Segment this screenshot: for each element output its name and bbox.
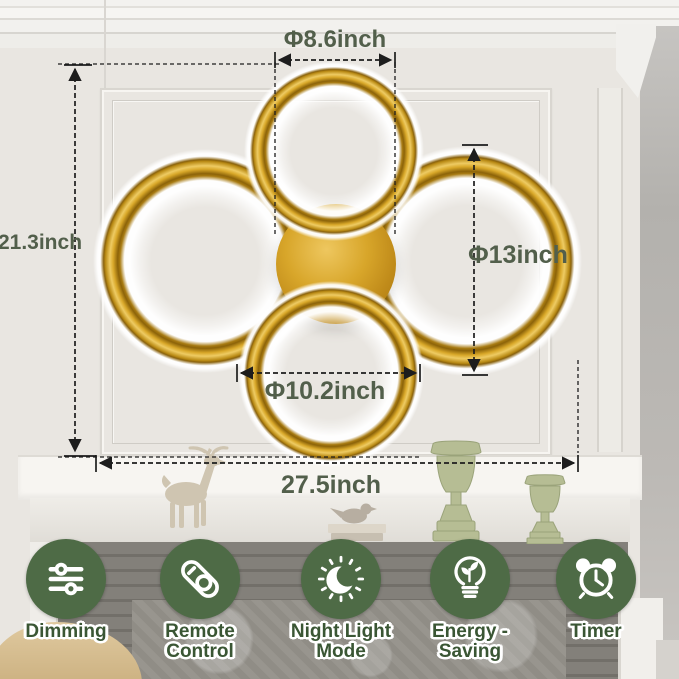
floor-corner (656, 640, 679, 679)
moon-icon (315, 553, 367, 605)
remote-control-icon (174, 553, 226, 605)
dimension-height-label: 21.3inch (0, 231, 82, 255)
feature-badge (26, 539, 106, 619)
dimension-bottom-ring-label: Φ10.2inch (265, 377, 386, 406)
feature-remote-control: Remote Control (134, 539, 266, 662)
feature-label: Dimming (25, 622, 106, 642)
feature-label: Energy - Saving (414, 622, 526, 662)
gold-led-ring-top (244, 61, 424, 241)
feature-label: Night Light Mode (277, 622, 405, 662)
feature-badge (556, 539, 636, 619)
dimmer-sliders-icon (40, 553, 92, 605)
candlestick-vase-large (427, 438, 485, 546)
dimension-side-ring-label: Φ13inch (468, 241, 568, 270)
energy-bulb-icon (444, 553, 496, 605)
feature-timer: Timer (530, 539, 662, 642)
bird-figurine (326, 498, 390, 544)
candlestick-vase-small (522, 472, 568, 544)
feature-dimming: Dimming (0, 539, 132, 642)
feature-night-light-mode: Night Light Mode (275, 539, 407, 662)
feature-label: Timer (570, 622, 621, 642)
feature-badge (301, 539, 381, 619)
deer-figurine (146, 446, 246, 534)
feature-energy-saving: Energy - Saving (404, 539, 536, 662)
dimension-top-ring-label: Φ8.6inch (284, 26, 386, 54)
dimension-width-label: 27.5inch (281, 471, 381, 500)
alarm-clock-icon (570, 553, 622, 605)
gold-led-ring-bottom (238, 281, 424, 467)
product-image-gold-ring-ceiling-light: Φ8.6inch 21.3inch Φ13inch Φ10.2inch 27.5… (0, 0, 679, 679)
wall-seam (104, 0, 106, 88)
feature-badge (430, 539, 510, 619)
feature-label: Remote Control (148, 622, 252, 662)
wall-molding-strip (597, 88, 623, 452)
feature-badge (160, 539, 240, 619)
